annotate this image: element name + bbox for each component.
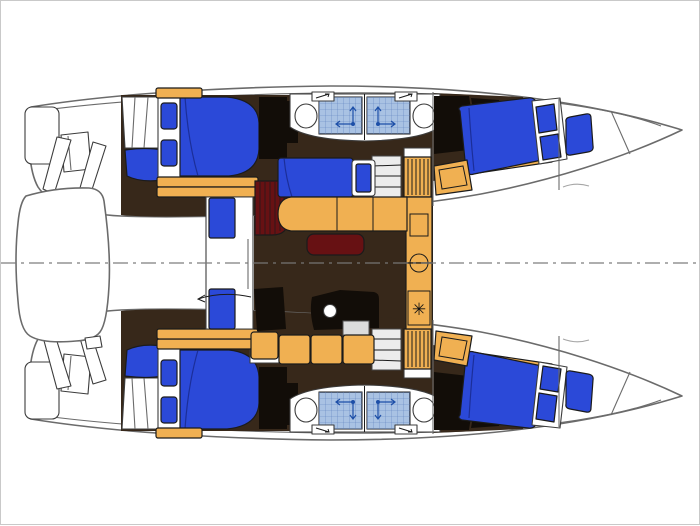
settee-berth [278, 158, 353, 197]
galley-cabinet [311, 335, 342, 364]
stove-burner-icon: ✳ [412, 300, 426, 320]
pillow [356, 164, 371, 192]
cockpit-seat [209, 198, 235, 238]
galley-cabinet [251, 332, 278, 359]
dinghy-on-davits [16, 188, 109, 349]
galley-counter [254, 287, 286, 331]
galley-cabinet [279, 335, 310, 364]
dinghy-hull [16, 188, 109, 342]
galley-appliance [343, 321, 369, 335]
galley-cabinet [343, 335, 374, 364]
floor-plan-canvas: ✳ [1, 1, 700, 526]
outboard-motor [85, 336, 102, 349]
saloon-table [307, 234, 364, 255]
catamaran-floor-plan: ✳ [0, 0, 700, 525]
galley-sink [324, 305, 337, 318]
saloon-sofa [278, 197, 407, 231]
